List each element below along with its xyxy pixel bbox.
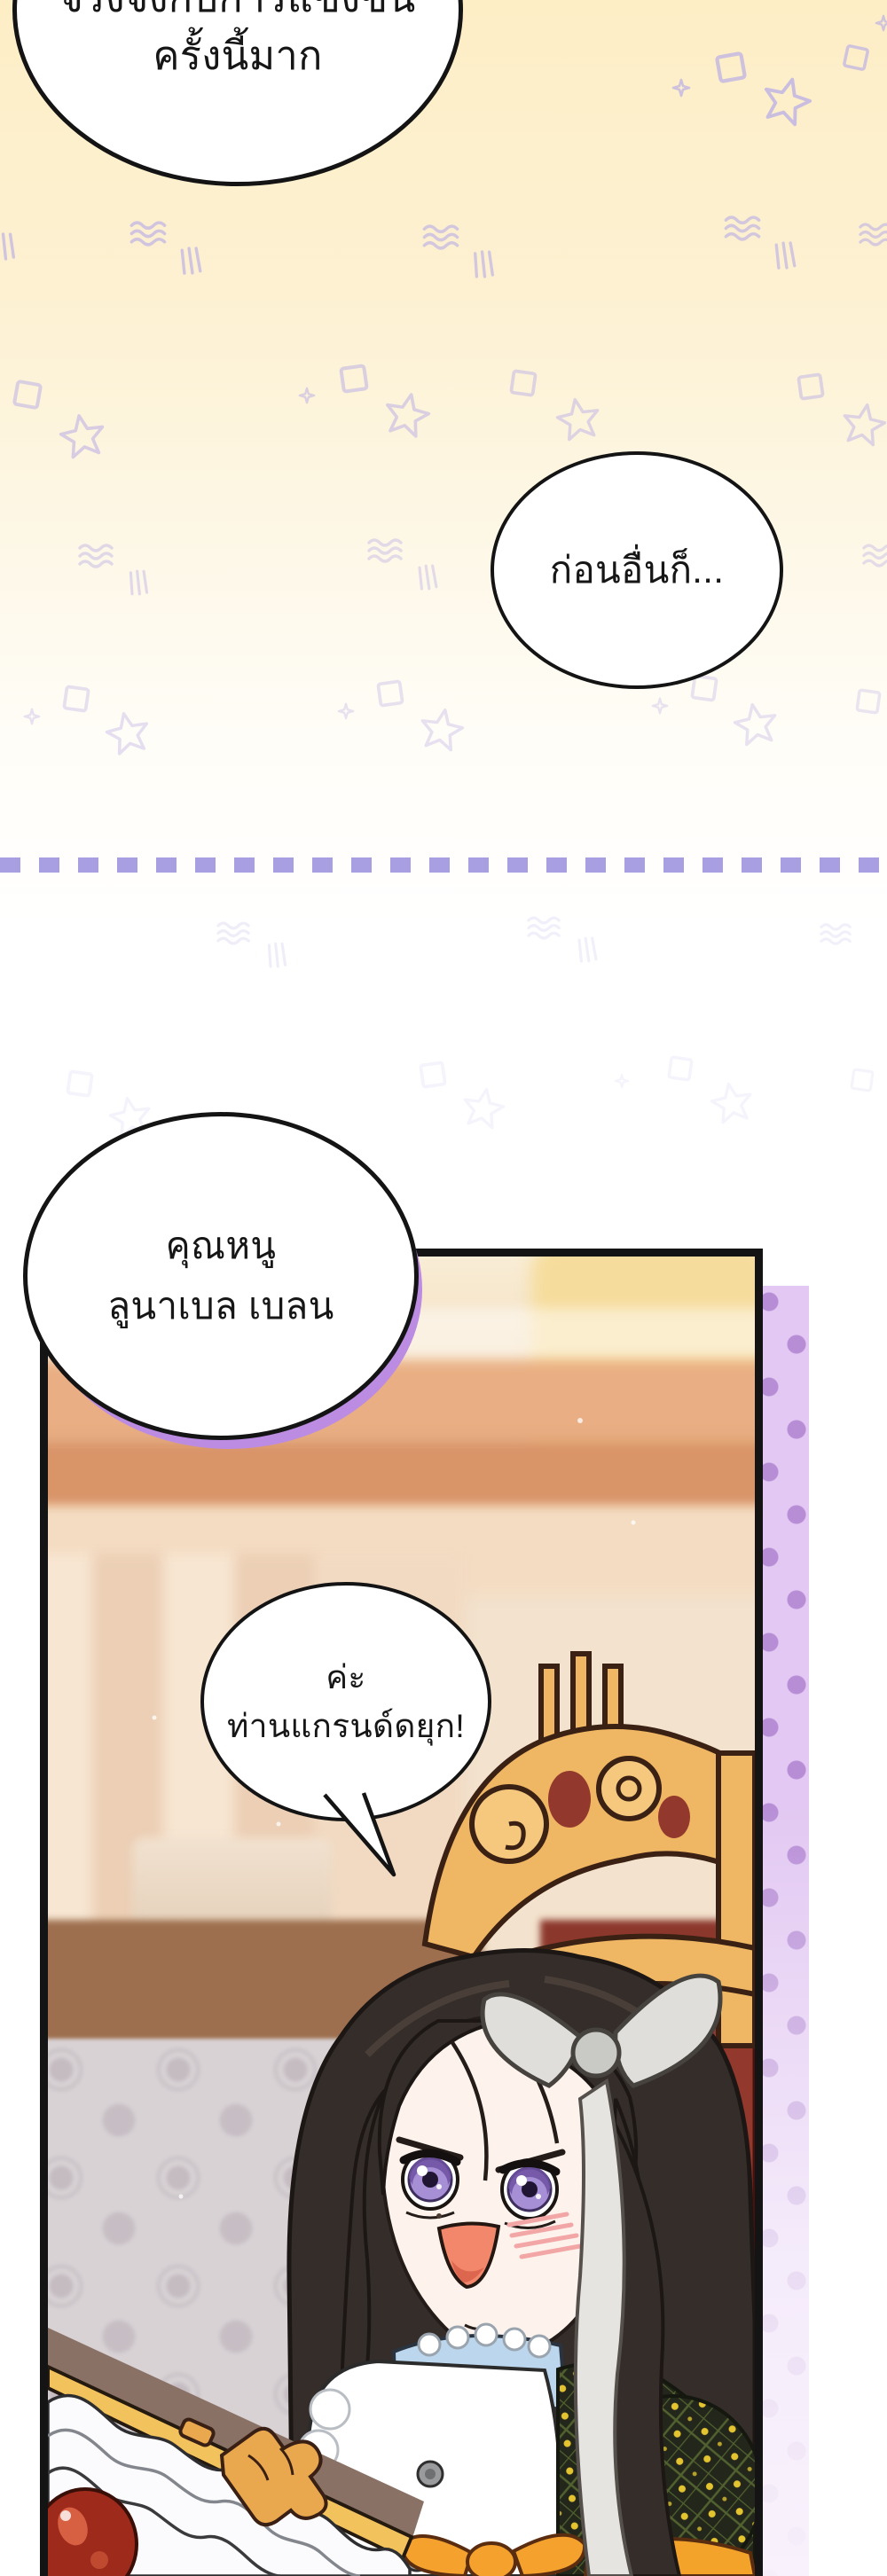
waves-doodle-icon — [820, 922, 853, 946]
bars-doodle-icon — [415, 562, 440, 591]
star-doodle-icon — [55, 408, 111, 464]
bars-doodle-icon — [575, 935, 600, 964]
speech-bubble-first-of-all: ก่อนอื่นก็... — [491, 451, 783, 689]
bubble-text: คุณหนู — [166, 1216, 277, 1276]
bars-doodle-icon — [470, 249, 496, 280]
dot-strip-fade — [756, 1286, 809, 2576]
sparkle-doodle-icon — [875, 14, 887, 32]
square-doodle-icon — [337, 362, 371, 395]
waves-doodle-icon — [367, 537, 404, 564]
square-doodle-icon — [840, 42, 872, 74]
square-doodle-icon — [374, 677, 406, 709]
waves-doodle-icon — [78, 543, 115, 569]
star-doodle-icon — [100, 705, 155, 760]
bubble-text: จริงจังกับการแข่งขัน — [59, 0, 415, 27]
comic-page: คุณหนู ลูนาเบล เบลน ค่ะ ท่านแกรนด์ดยุก! … — [0, 0, 887, 2576]
artwork-panel — [40, 1249, 763, 2576]
bars-doodle-icon — [126, 568, 150, 597]
sparkle-doodle-icon — [651, 697, 669, 715]
bars-doodle-icon — [772, 239, 798, 270]
waves-doodle-icon — [724, 215, 763, 242]
square-doodle-icon — [417, 1059, 449, 1091]
speech-bubble-name-call: คุณหนู ลูนาเบล เบลน — [23, 1112, 419, 1440]
panel-illustration — [48, 1257, 755, 2576]
sparkle-doodle-icon — [614, 1073, 630, 1089]
waves-doodle-icon — [862, 543, 887, 568]
bubble-text: ท่านแกรนด์ดยุก! — [227, 1702, 465, 1751]
sparkle-doodle-icon — [298, 387, 316, 404]
waves-doodle-icon — [216, 920, 252, 946]
star-doodle-icon — [415, 702, 468, 756]
waves-doodle-icon — [527, 915, 562, 941]
square-doodle-icon — [712, 49, 750, 86]
star-doodle-icon — [706, 1077, 757, 1128]
sparkle-doodle-icon — [337, 702, 355, 720]
bubble-text: ค่ะ — [326, 1653, 365, 1703]
square-doodle-icon — [795, 371, 827, 403]
bubble-text: ลูนาเบล เบลน — [107, 1276, 334, 1336]
speech-bubble-tail — [312, 1789, 410, 1882]
bubble-text: ครั้งนี้มาก — [153, 27, 322, 84]
waves-doodle-icon — [130, 220, 169, 247]
bars-doodle-icon — [177, 245, 204, 276]
waves-doodle-icon — [859, 222, 887, 247]
star-doodle-icon — [837, 397, 887, 450]
star-doodle-icon — [729, 697, 782, 750]
speech-bubble-reply: ค่ะ ท่านแกรนด์ดยุก! — [200, 1582, 491, 1821]
star-doodle-icon — [458, 1082, 509, 1133]
square-doodle-icon — [10, 377, 44, 411]
dashed-divider — [0, 857, 887, 873]
square-doodle-icon — [853, 686, 883, 716]
waves-doodle-icon — [422, 223, 461, 251]
square-doodle-icon — [665, 1053, 695, 1084]
sparkle-doodle-icon — [23, 708, 41, 725]
bars-doodle-icon — [264, 941, 288, 969]
star-doodle-icon — [552, 392, 605, 445]
square-doodle-icon — [507, 367, 539, 399]
bars-doodle-icon — [0, 231, 18, 262]
sparkle-doodle-icon — [671, 78, 691, 98]
bubble-text: ก่อนอื่นก็... — [550, 541, 724, 599]
star-doodle-icon — [379, 386, 436, 442]
square-doodle-icon — [848, 1066, 876, 1094]
square-doodle-icon — [64, 1068, 96, 1100]
square-doodle-icon — [60, 683, 92, 715]
dot-strip-decoration — [756, 1286, 809, 2576]
